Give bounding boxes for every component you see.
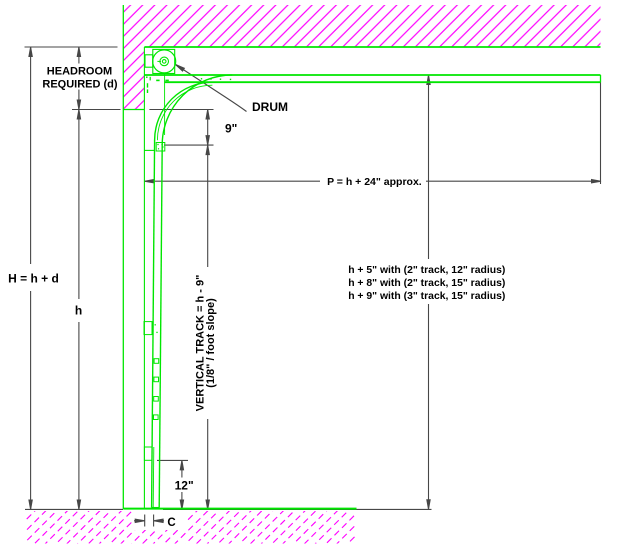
svg-text:h + 8" with (2" track, 15" rad: h + 8" with (2" track, 15" radius) [348,278,505,289]
svg-text:REQUIRED (d): REQUIRED (d) [42,78,118,90]
svg-text:H = h + d: H = h + d [8,272,59,286]
svg-text:h + 5" with (2" track, 12" rad: h + 5" with (2" track, 12" radius) [348,265,505,276]
svg-text:HEADROOM: HEADROOM [47,65,112,77]
svg-text:12": 12" [175,479,194,493]
svg-text:DRUM: DRUM [252,100,288,114]
svg-text:9": 9" [225,122,237,136]
svg-text:C: C [167,517,175,529]
svg-text:(1/8" / foot slope): (1/8" / foot slope) [205,298,217,388]
svg-text:h + 9" with (3" track, 15" rad: h + 9" with (3" track, 15" radius) [348,291,505,302]
svg-text:P = h + 24" approx.: P = h + 24" approx. [327,176,422,188]
svg-text:h: h [75,304,82,318]
